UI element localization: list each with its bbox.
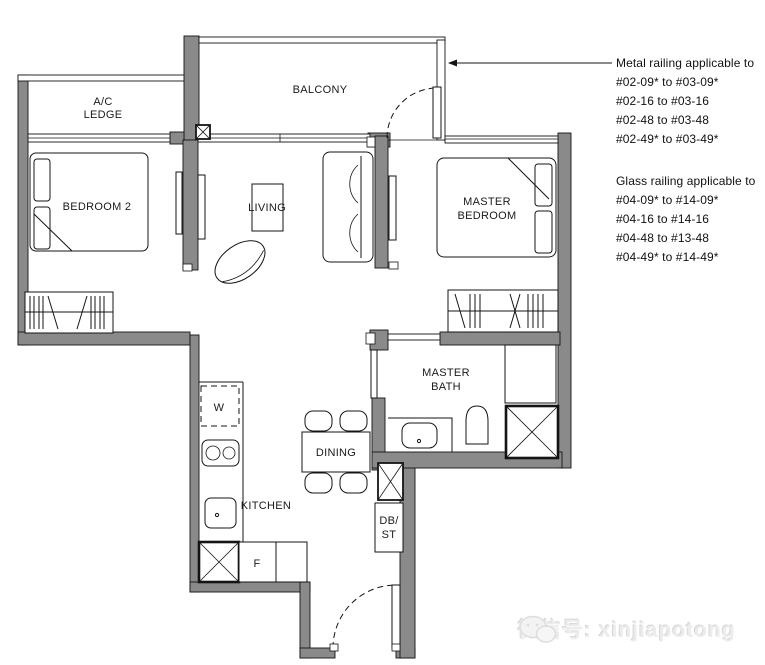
balcony-door-swing-arc <box>387 88 437 138</box>
unit-range: #04-48 to #13-48 <box>616 229 765 248</box>
unit-range: #04-16 to #14-16 <box>616 210 765 229</box>
floor-plan-page: A/C LEDGE BALCONY BEDROOM 2 LIVING MASTE… <box>0 0 765 665</box>
entrance-door-leaf <box>392 585 400 648</box>
shaft-box <box>378 463 403 500</box>
dining-chair <box>340 411 367 431</box>
balcony-label: BALCONY <box>293 84 348 96</box>
toilet <box>466 406 488 444</box>
shower <box>506 406 558 458</box>
bedroom2-label: BEDROOM 2 <box>63 201 132 213</box>
wall <box>440 332 560 345</box>
master-bath-label: BATH <box>431 381 461 393</box>
kitchen-shaft <box>199 542 239 582</box>
ac-ledge-shaft <box>196 125 210 139</box>
master-bedroom-furniture <box>437 158 558 332</box>
pillow <box>34 159 50 201</box>
balcony-top-railing <box>199 37 445 43</box>
fridge-label: F <box>253 558 260 570</box>
armchair <box>207 232 272 292</box>
unit-range: #02-16 to #03-16 <box>616 92 765 111</box>
bedroom2-sliding-door-panel <box>176 172 182 234</box>
wall <box>375 136 388 268</box>
fridge-cabinet <box>239 542 307 582</box>
db-st-label: DB/ <box>379 515 399 527</box>
wall <box>190 582 310 592</box>
window <box>445 136 558 143</box>
door-jamb <box>367 137 375 147</box>
entrance-door-swing-arc <box>333 585 396 648</box>
window <box>388 334 440 340</box>
ac-ledge-label: A/C <box>93 96 112 108</box>
door-jamb <box>183 264 192 271</box>
dining-chair <box>305 473 332 493</box>
unit-range: #02-49* to #03-49* <box>616 130 765 149</box>
door-jamb <box>392 644 400 651</box>
unit-range: #02-48 to #03-48 <box>616 111 765 130</box>
wall <box>170 132 184 144</box>
wall <box>183 140 198 270</box>
bedroom2-sliding-door-panel <box>198 175 205 239</box>
metal-railing-title: Metal railing applicable to <box>616 54 765 73</box>
bedroom2-wardrobe <box>25 292 113 333</box>
unit-range: #04-09* to #14-09* <box>616 191 765 210</box>
bath-ledge <box>505 345 556 403</box>
unit-range: #02-09* to #03-09* <box>616 73 765 92</box>
wall <box>18 332 190 345</box>
living-furniture <box>207 152 373 292</box>
living-label: LIVING <box>248 202 286 214</box>
metal-railing-leader-line <box>448 60 612 67</box>
master-bath-fixtures <box>388 345 558 458</box>
glass-railing-note: Glass railing applicable to #04-09* to #… <box>616 172 765 267</box>
dining-chair <box>340 473 367 493</box>
wechat-icon <box>518 614 558 646</box>
dining-label: DINING <box>316 447 356 459</box>
unit-range: #04-49* to #14-49* <box>616 248 765 267</box>
wall <box>558 133 571 468</box>
wall <box>300 582 310 658</box>
master-wardrobe <box>448 290 558 332</box>
ac-ledge-label: LEDGE <box>84 109 123 121</box>
washer-label: W <box>214 402 225 414</box>
db-st-box <box>375 503 403 552</box>
glass-railing-title: Glass railing applicable to <box>616 172 765 191</box>
dining-chair <box>305 411 332 431</box>
master-bedroom-sliding-door-panel <box>389 176 396 240</box>
master-bedroom-label: BEDROOM <box>458 210 517 222</box>
balcony-door-leaf <box>433 87 441 138</box>
wall <box>190 335 199 592</box>
door-jamb <box>389 262 398 269</box>
kitchen-label: KITCHEN <box>241 500 291 512</box>
master-bedroom-label: MASTER <box>463 196 511 208</box>
ac-ledge-railing <box>18 75 184 81</box>
vanity-sink <box>402 423 437 448</box>
sofa <box>323 152 373 262</box>
cooktop-hob <box>202 440 239 466</box>
pillow <box>535 211 552 253</box>
kitchen-sink <box>205 498 236 528</box>
pillow <box>535 164 552 206</box>
master-bath-door-panel <box>371 350 377 398</box>
arrowhead <box>448 60 457 67</box>
door-jamb <box>330 644 338 651</box>
pillow <box>34 207 50 249</box>
master-bath-label: MASTER <box>422 367 470 379</box>
db-st-label: ST <box>382 529 397 541</box>
watermark: 微信号: xinjiapotong <box>518 614 736 644</box>
door-jamb <box>366 333 375 344</box>
bedroom2-furniture <box>25 153 148 333</box>
metal-railing-note: Metal railing applicable to #02-09* to #… <box>616 54 765 149</box>
